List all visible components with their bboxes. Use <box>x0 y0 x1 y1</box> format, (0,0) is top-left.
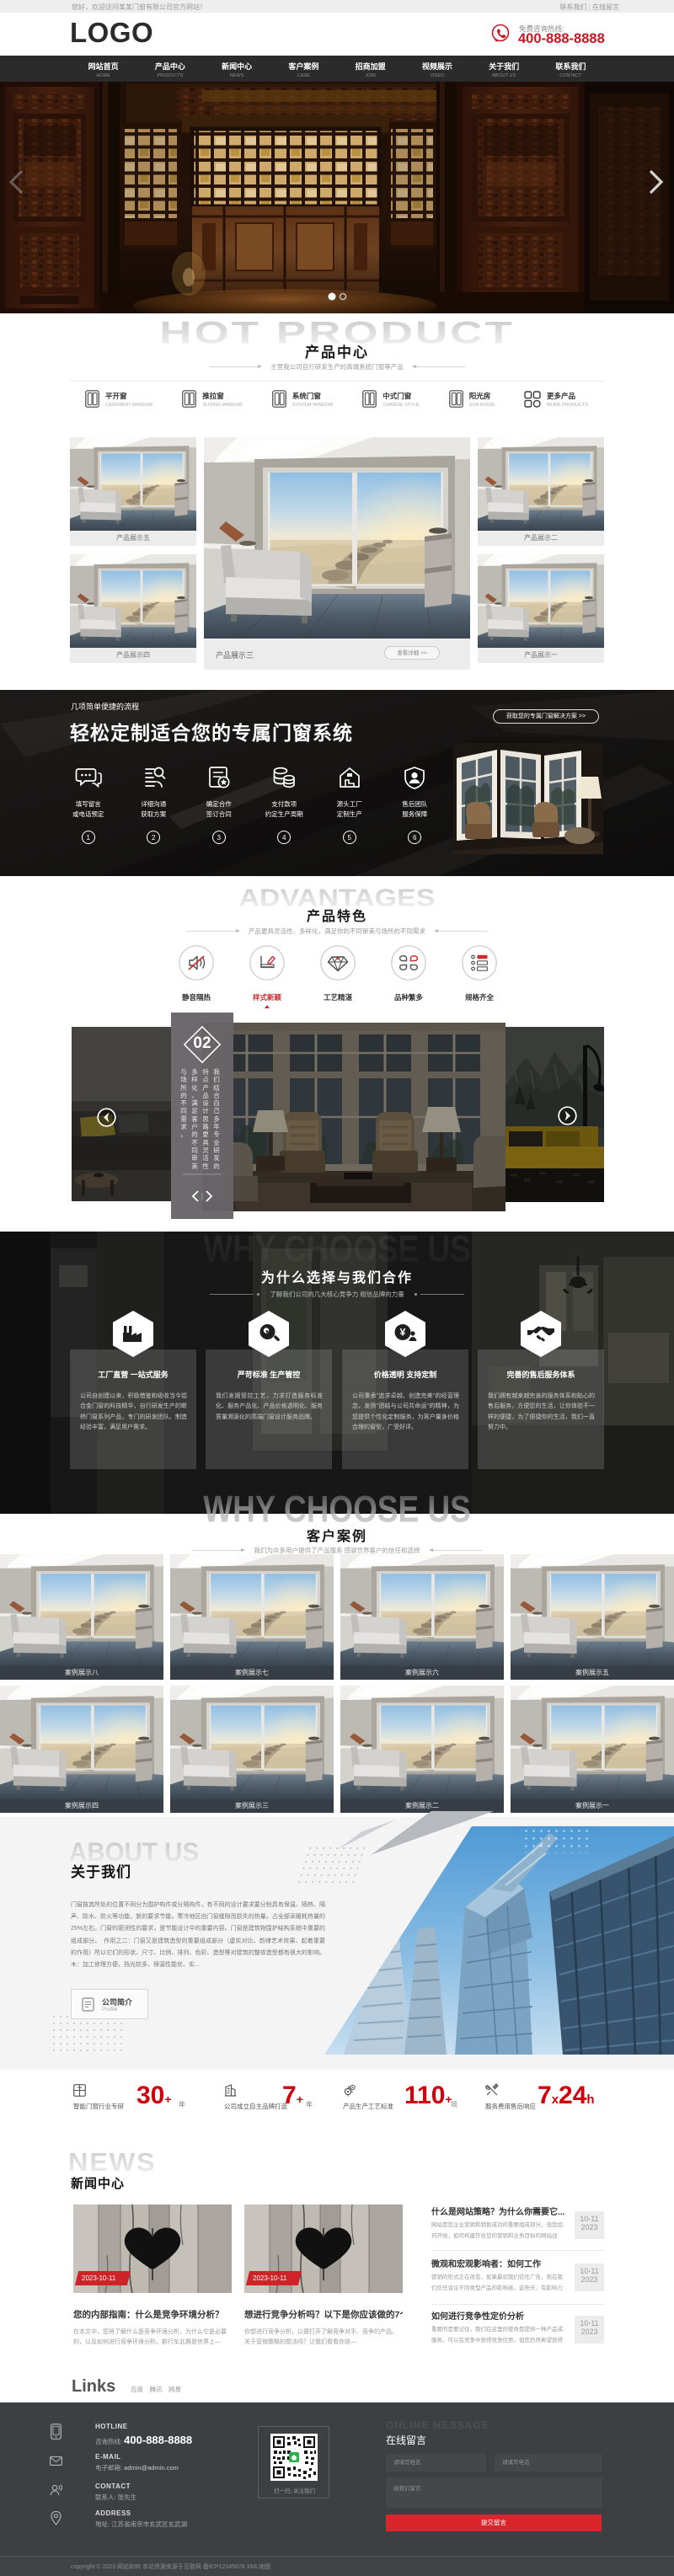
svg-text:¥: ¥ <box>400 1327 406 1339</box>
